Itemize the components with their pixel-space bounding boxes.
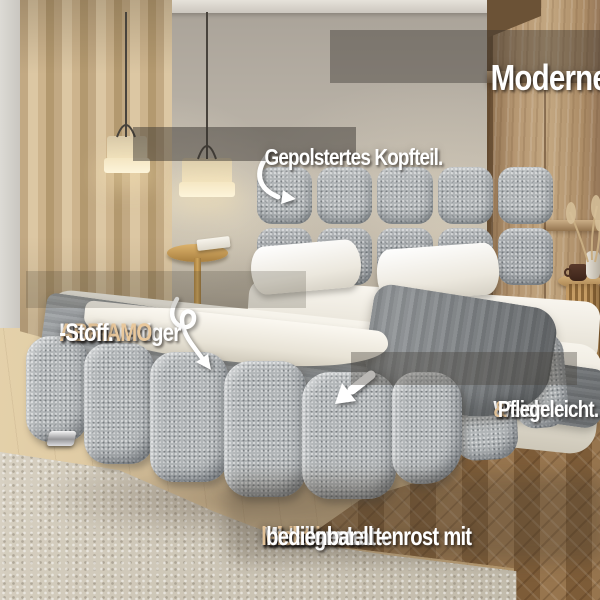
headline-badge: Modernes Design xyxy=(330,30,600,83)
fabric-label: Hochwertiger ABRIAMO-Stoff. xyxy=(26,271,306,308)
pampas-grass xyxy=(566,195,600,262)
slats-line2-post: bedienbar. xyxy=(261,519,359,554)
softness-post: Pflegeleicht. xyxy=(493,396,598,423)
softness-label-badge: Weich & Pflegeleicht. xyxy=(351,352,577,385)
headboard-label-text: Gepolstertes Kopfteil. xyxy=(264,144,442,171)
headline-text: Modernes Design xyxy=(491,57,600,99)
bed-advertisement-image: Modernes Design Gepolstertes Kopfteil. H… xyxy=(0,0,600,600)
fabric-label-post: -Stoff. xyxy=(59,319,112,348)
headboard-label-badge: Gepolstertes Kopfteil. xyxy=(133,127,356,161)
